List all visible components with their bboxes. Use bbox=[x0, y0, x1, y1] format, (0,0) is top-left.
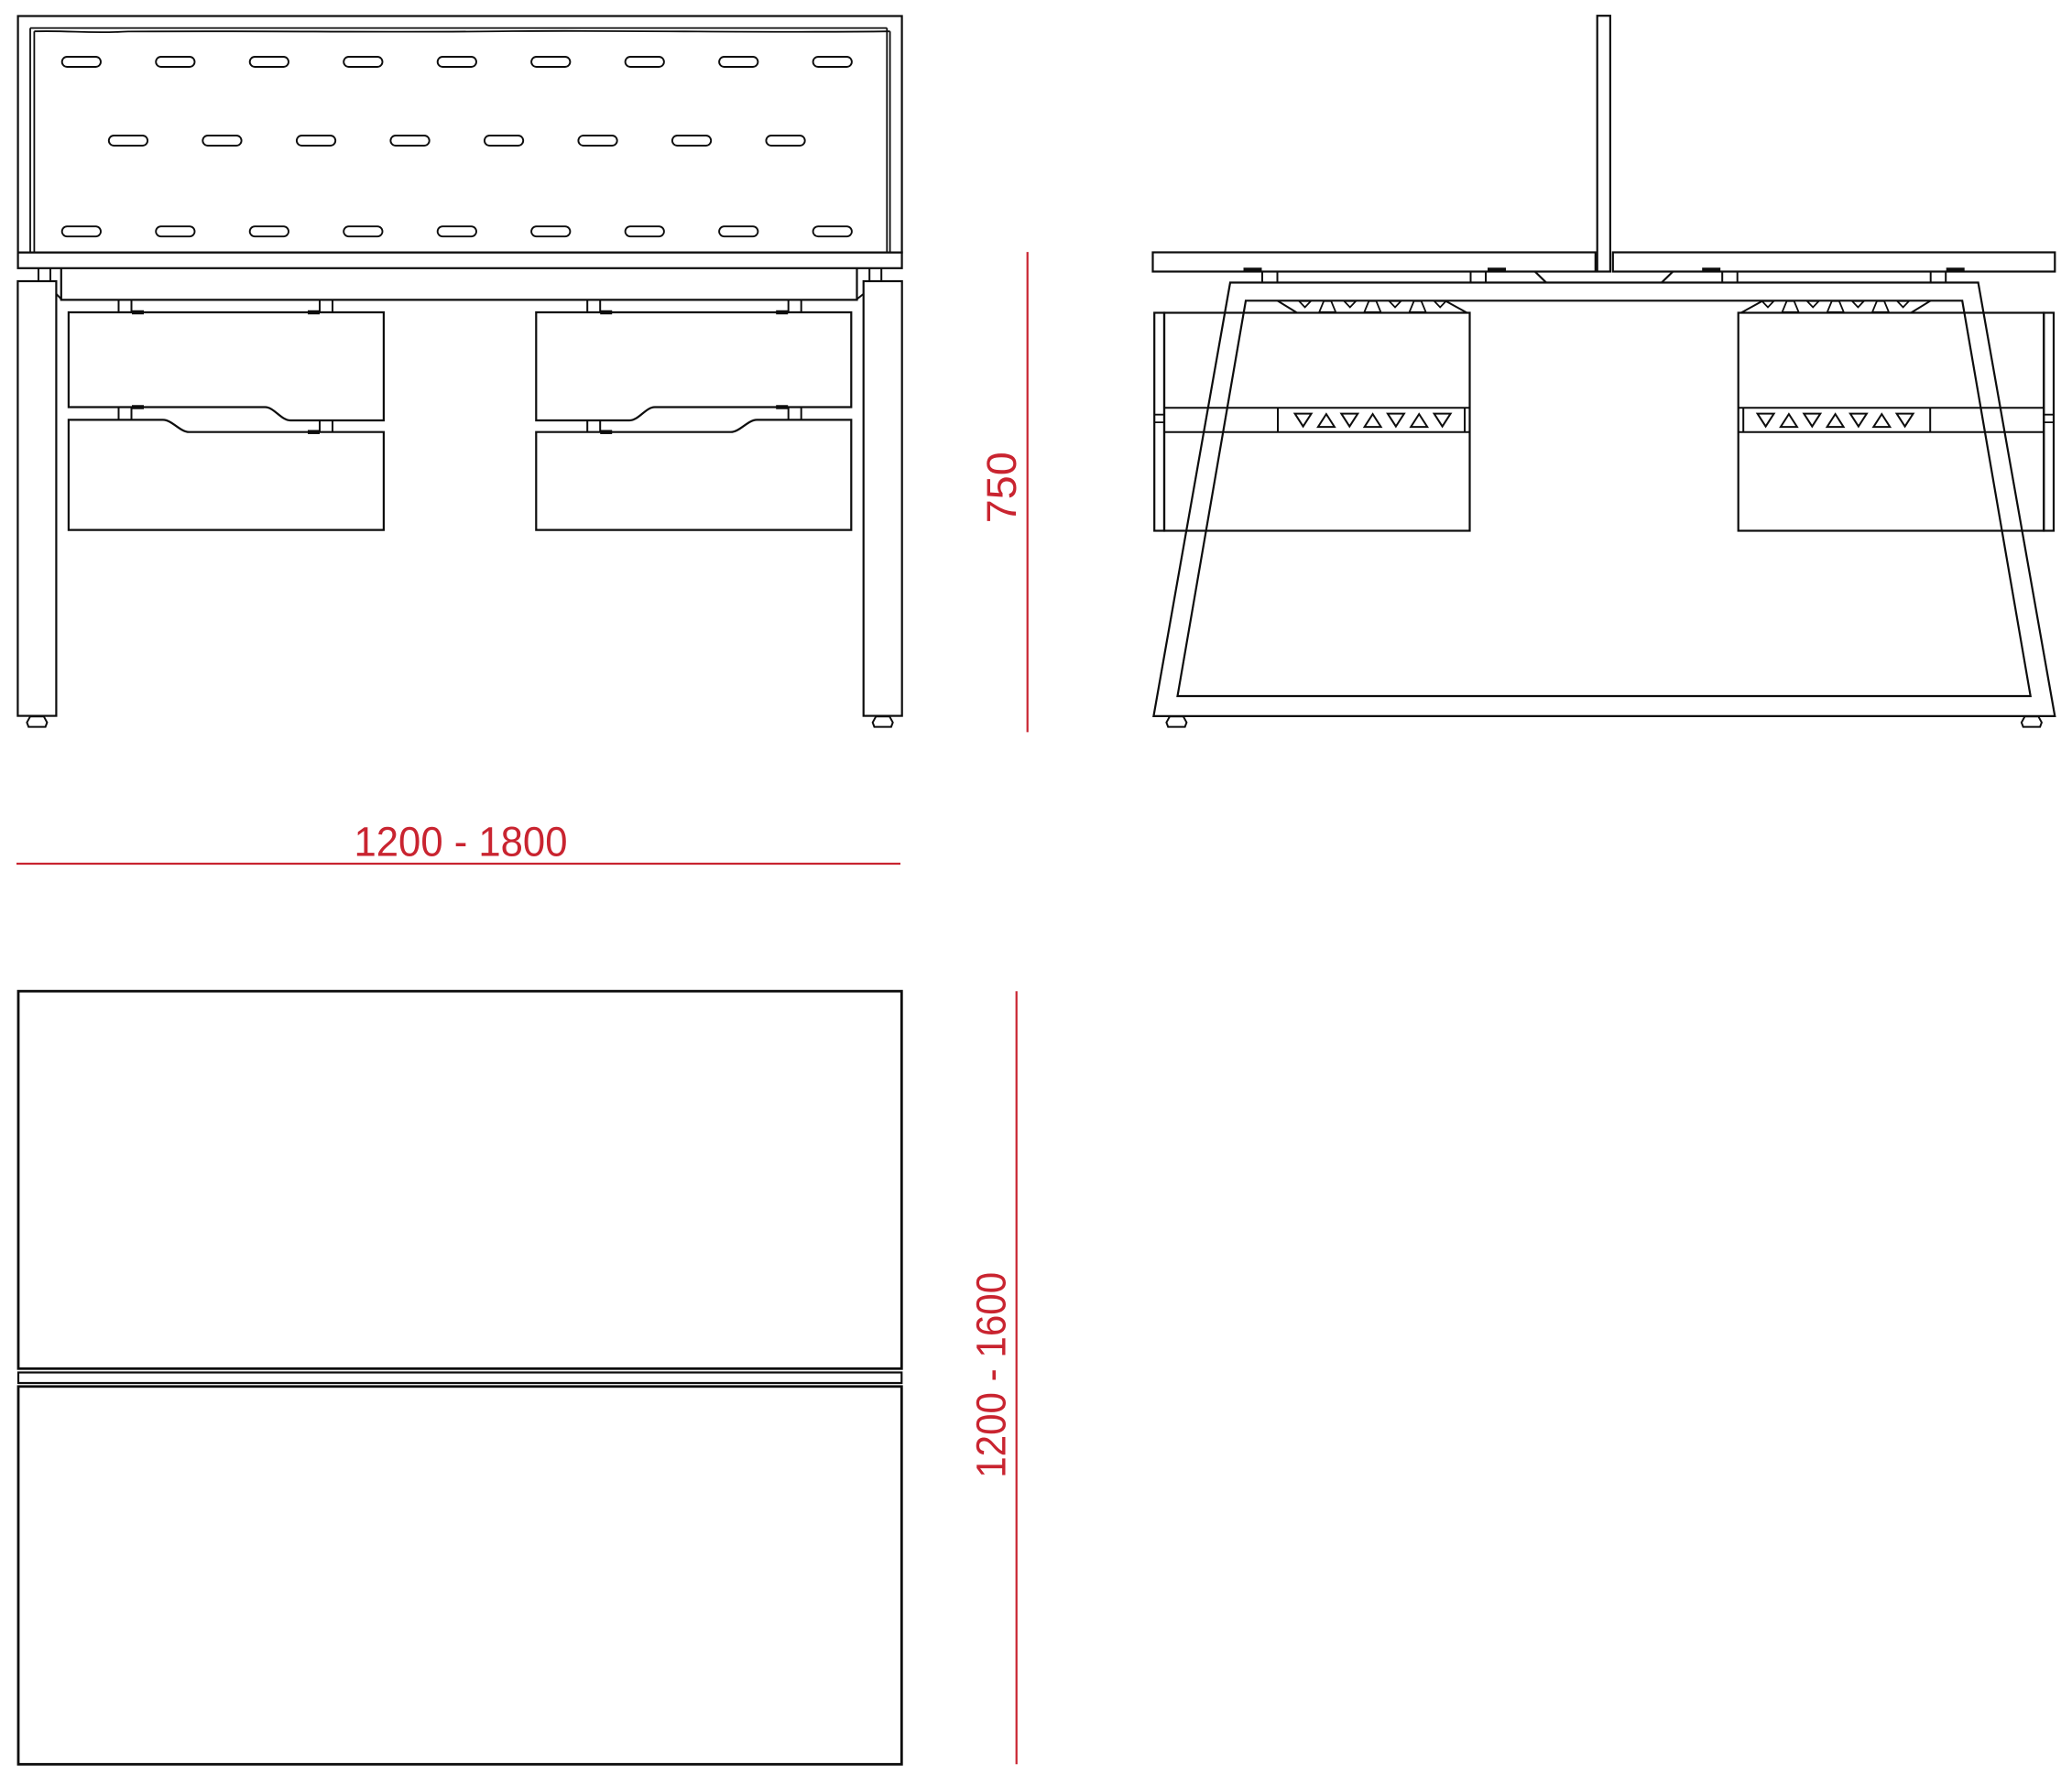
svg-text:1200 - 1800: 1200 - 1800 bbox=[354, 819, 568, 866]
svg-text:750: 750 bbox=[978, 452, 1025, 523]
svg-text:1200 - 1600: 1200 - 1600 bbox=[968, 1272, 1015, 1478]
